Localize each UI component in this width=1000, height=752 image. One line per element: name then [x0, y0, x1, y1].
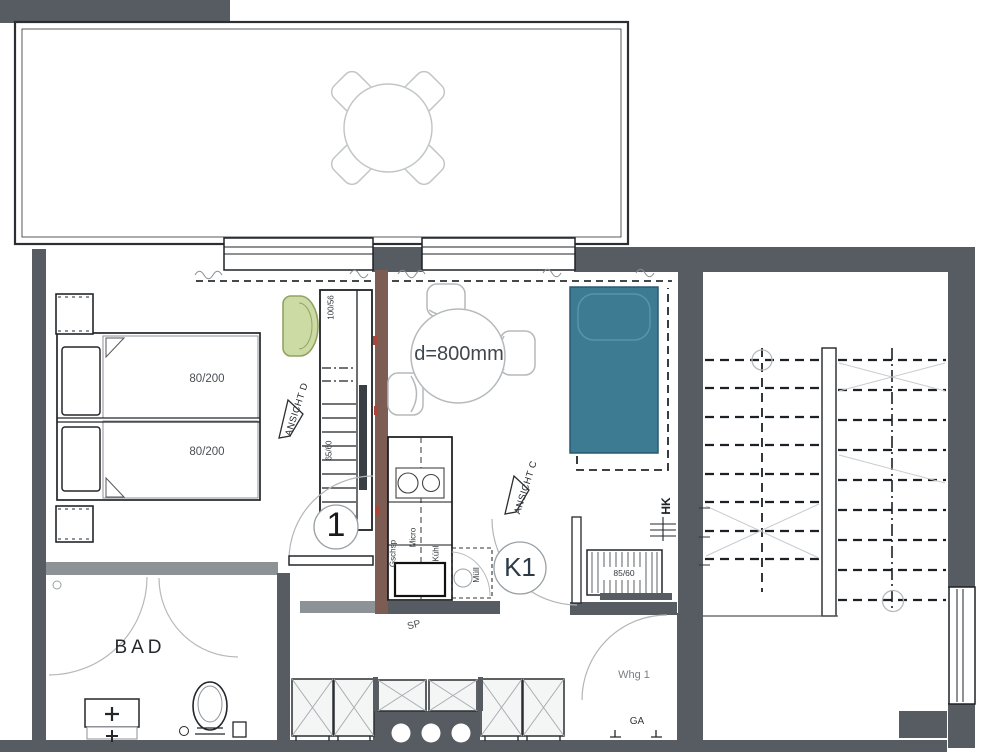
unit-label-waste: Müll — [471, 551, 481, 599]
duct-openings — [392, 724, 471, 743]
tv-panel — [359, 385, 367, 490]
shower-swing — [49, 577, 147, 675]
door-leaf — [289, 556, 373, 565]
stair-window — [949, 587, 975, 704]
staircase — [699, 348, 946, 616]
radiator-tag: HK — [659, 486, 673, 526]
stair-stringer — [822, 348, 836, 616]
wardrobe-box — [292, 679, 333, 741]
bathroom-fixtures — [85, 682, 246, 742]
terrace — [15, 22, 628, 244]
unit-label-fridge: Kühl — [432, 530, 441, 578]
terrace-window-right — [422, 238, 575, 270]
room-label-bad: BAD — [102, 637, 178, 659]
radiator — [587, 517, 676, 600]
bed-size-bottom: 80/200 — [178, 446, 236, 458]
wardrobe-box — [334, 679, 374, 741]
terrace-table-set — [328, 68, 448, 188]
unit-label-micro: Micro — [409, 514, 418, 562]
door-number-1: 1 — [316, 506, 356, 545]
threshold-marks — [610, 730, 662, 737]
twin-beds — [57, 333, 260, 500]
table-diameter-label: d=800mm — [398, 343, 520, 366]
door-number-k1: K1 — [490, 552, 550, 583]
frame-markers — [373, 336, 379, 515]
door-leaf — [572, 517, 581, 603]
armchair — [283, 296, 318, 356]
wardrobe-box — [378, 680, 426, 711]
terrace-window-left — [224, 238, 373, 270]
cooktop — [396, 468, 444, 498]
apartment-door-label: Whg 1 — [603, 669, 665, 681]
shelf-dim-bottom: 65/60 — [325, 427, 334, 475]
shelf-dim-top: 100/56 — [327, 284, 336, 332]
pillow — [62, 427, 100, 491]
lintel-lines — [195, 269, 672, 281]
threshold-tag: GA — [617, 716, 657, 727]
wardrobe-box — [429, 680, 477, 711]
radiator-dim: 85/60 — [600, 568, 648, 578]
wardrobe-box — [481, 679, 522, 741]
wardrobe-box — [523, 679, 564, 741]
floor-plan: BAD 80/200 80/200 d=800mm 1 K1 ANSICHT D… — [0, 0, 1000, 752]
unit-label-dishwasher: Gschsp — [389, 530, 398, 578]
pillow — [62, 347, 100, 415]
sofa-bed — [570, 287, 668, 470]
bed-size-top: 80/200 — [178, 373, 236, 385]
entry-door-swing — [582, 615, 667, 700]
